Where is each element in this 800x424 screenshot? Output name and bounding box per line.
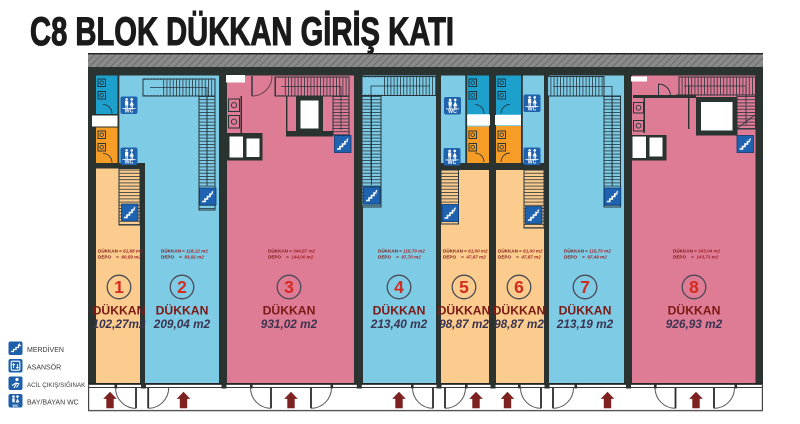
svg-text:DÜKKAN = 61,00 m2: DÜKKAN = 61,00 m2 <box>443 247 488 253</box>
svg-text:1: 1 <box>114 277 124 297</box>
svg-text:98,87 m2: 98,87 m2 <box>494 317 544 331</box>
svg-text:C8 BLOK DÜKKAN GİRİŞ KATI: C8 BLOK DÜKKAN GİRİŞ KATI <box>30 9 454 54</box>
svg-text:WC: WC <box>448 109 457 115</box>
svg-text:102,27m2: 102,27m2 <box>92 317 146 331</box>
svg-text:MERDİVEN: MERDİVEN <box>27 345 64 354</box>
svg-text:DÜKKAN = 61,00 m2: DÜKKAN = 61,00 m2 <box>498 247 543 253</box>
svg-text:DEPO = 97,70 m2: DEPO = 97,70 m2 <box>378 255 421 260</box>
svg-text:WC: WC <box>13 404 19 408</box>
svg-text:WC: WC <box>528 106 537 112</box>
svg-text:DEPO = 93,92 m2: DEPO = 93,92 m2 <box>161 255 204 260</box>
svg-text:WC: WC <box>448 160 457 166</box>
svg-text:2: 2 <box>177 277 187 297</box>
svg-text:213,19 m2: 213,19 m2 <box>556 317 614 331</box>
svg-text:DEPO = 60,59 m2: DEPO = 60,59 m2 <box>98 255 141 260</box>
svg-text:DÜKKAN: DÜKKAN <box>263 303 316 318</box>
svg-text:BAY/BAYAN WC: BAY/BAYAN WC <box>27 400 79 407</box>
svg-text:DÜKKAN = 118,12 m2: DÜKKAN = 118,12 m2 <box>161 247 208 253</box>
svg-text:7: 7 <box>580 277 590 297</box>
svg-text:ACİL ÇIKIŞ/SIĞINAK: ACİL ÇIKIŞ/SIĞINAK <box>27 382 86 389</box>
svg-text:DÜKKAN = 115,70 m2: DÜKKAN = 115,70 m2 <box>564 247 611 253</box>
svg-text:DÜKKAN = 343,04 m2: DÜKKAN = 343,04 m2 <box>673 247 721 253</box>
svg-text:DEPO = 47,87 m2: DEPO = 47,87 m2 <box>443 255 486 260</box>
svg-text:DÜKKAN: DÜKKAN <box>559 303 612 318</box>
svg-text:3: 3 <box>284 277 294 297</box>
svg-text:DÜKKAN: DÜKKAN <box>156 303 209 318</box>
svg-text:DÜKKAN = 344,87 m2: DÜKKAN = 344,87 m2 <box>268 247 316 253</box>
svg-text:DÜKKAN: DÜKKAN <box>668 303 721 318</box>
svg-text:DÜKKAN: DÜKKAN <box>438 303 491 318</box>
svg-text:6: 6 <box>514 277 524 297</box>
svg-text:98,87 m2: 98,87 m2 <box>439 317 489 331</box>
svg-text:ASANSÖR: ASANSÖR <box>27 364 61 372</box>
svg-text:5: 5 <box>459 277 469 297</box>
svg-text:4: 4 <box>394 277 404 297</box>
svg-text:DÜKKAN: DÜKKAN <box>93 303 146 318</box>
svg-text:209,04 m2: 209,04 m2 <box>153 317 211 331</box>
svg-text:DÜKKAN = 61,68 m2: DÜKKAN = 61,68 m2 <box>98 247 143 253</box>
svg-text:DEPO = 143,73 m2: DEPO = 143,73 m2 <box>673 255 719 260</box>
svg-text:213,40 m2: 213,40 m2 <box>370 317 428 331</box>
svg-text:DÜKKAN: DÜKKAN <box>493 303 546 318</box>
svg-text:8: 8 <box>689 277 699 297</box>
svg-text:931,02 m2: 931,02 m2 <box>261 317 318 331</box>
svg-text:WC: WC <box>125 108 134 114</box>
svg-text:WC: WC <box>528 159 537 165</box>
svg-text:DÜKKAN = 115,70 m2: DÜKKAN = 115,70 m2 <box>378 247 425 253</box>
svg-text:926,93 m2: 926,93 m2 <box>666 317 723 331</box>
svg-text:DEPO = 97,49 m2: DEPO = 97,49 m2 <box>564 255 607 260</box>
svg-text:DEPO = 47,87 m2: DEPO = 47,87 m2 <box>498 255 541 260</box>
svg-text:DEPO = 144,00 m2: DEPO = 144,00 m2 <box>268 255 314 260</box>
svg-text:WC: WC <box>125 159 134 165</box>
svg-text:DÜKKAN: DÜKKAN <box>373 303 426 318</box>
